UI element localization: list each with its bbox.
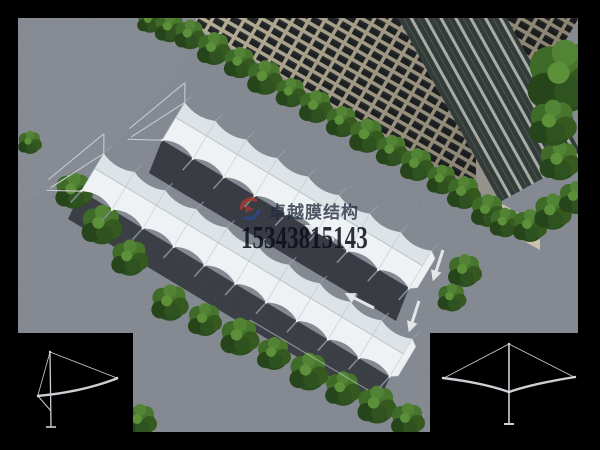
image-frame: 卓越膜结构 15343815143 (0, 0, 600, 450)
aerial-render (0, 0, 600, 450)
right-inset-box (430, 333, 600, 450)
